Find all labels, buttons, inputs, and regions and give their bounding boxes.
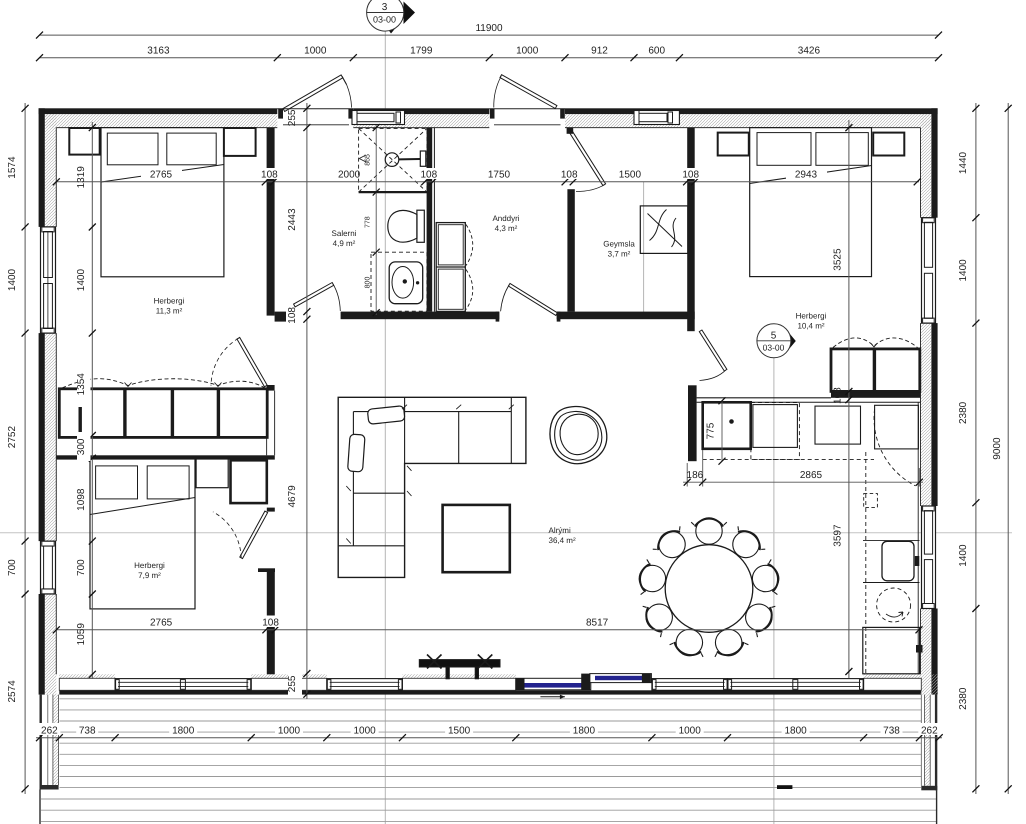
svg-text:2380: 2380 [958, 401, 969, 424]
svg-text:1059: 1059 [76, 623, 87, 646]
svg-text:1440: 1440 [958, 151, 969, 174]
svg-text:1319: 1319 [76, 166, 87, 189]
svg-text:03-00: 03-00 [373, 15, 396, 25]
svg-text:Geymsla: Geymsla [603, 240, 635, 249]
svg-text:1000: 1000 [353, 725, 376, 736]
svg-text:36,4 m²: 36,4 m² [549, 536, 576, 545]
svg-text:255: 255 [287, 109, 298, 126]
svg-text:2380: 2380 [958, 687, 969, 710]
svg-text:600: 600 [648, 45, 665, 56]
svg-text:Alrými: Alrými [549, 526, 571, 535]
svg-text:1400: 1400 [7, 268, 18, 291]
svg-text:108: 108 [262, 618, 279, 629]
svg-text:255: 255 [287, 675, 298, 692]
svg-text:4679: 4679 [287, 485, 298, 508]
svg-text:108: 108 [287, 307, 298, 324]
svg-text:108: 108 [420, 170, 437, 181]
svg-text:3525: 3525 [833, 248, 844, 271]
svg-text:778: 778 [365, 216, 372, 228]
svg-text:3163: 3163 [147, 45, 170, 56]
svg-text:738: 738 [79, 725, 96, 736]
svg-text:11,3 m²: 11,3 m² [156, 307, 183, 316]
svg-text:5: 5 [771, 331, 777, 342]
svg-text:7,9 m²: 7,9 m² [138, 571, 161, 580]
svg-text:Herbergi: Herbergi [796, 312, 827, 321]
svg-text:3: 3 [382, 2, 388, 13]
svg-text:2865: 2865 [800, 470, 823, 481]
svg-text:2443: 2443 [287, 208, 298, 231]
svg-text:1500: 1500 [619, 170, 642, 181]
svg-text:2000: 2000 [338, 170, 361, 181]
svg-text:2943: 2943 [795, 170, 818, 181]
svg-text:108: 108 [261, 170, 278, 181]
svg-text:1800: 1800 [784, 725, 807, 736]
svg-text:738: 738 [883, 725, 900, 736]
svg-text:1799: 1799 [410, 45, 433, 56]
svg-text:1000: 1000 [679, 725, 702, 736]
svg-text:Anddyri: Anddyri [492, 214, 519, 223]
svg-text:262: 262 [41, 725, 58, 736]
svg-text:108: 108 [682, 170, 699, 181]
svg-text:8517: 8517 [586, 618, 609, 629]
svg-text:1000: 1000 [304, 45, 327, 56]
svg-text:1400: 1400 [958, 259, 969, 282]
svg-text:1800: 1800 [573, 725, 596, 736]
svg-text:4,3 m²: 4,3 m² [495, 224, 518, 233]
svg-text:1354: 1354 [76, 373, 87, 396]
svg-text:1800: 1800 [172, 725, 195, 736]
svg-text:2574: 2574 [7, 680, 18, 703]
svg-text:3597: 3597 [833, 524, 844, 547]
svg-text:186: 186 [687, 470, 704, 481]
svg-text:2752: 2752 [7, 426, 18, 449]
svg-text:108: 108 [833, 387, 844, 404]
svg-text:2765: 2765 [150, 618, 173, 629]
svg-text:3,7 m²: 3,7 m² [608, 250, 631, 259]
svg-text:775: 775 [706, 422, 717, 439]
svg-text:700: 700 [76, 559, 87, 576]
svg-text:Herbergi: Herbergi [154, 297, 185, 306]
svg-text:9000: 9000 [992, 437, 1003, 460]
svg-text:1000: 1000 [278, 725, 301, 736]
svg-text:262: 262 [921, 725, 938, 736]
svg-text:1400: 1400 [958, 544, 969, 567]
svg-text:03-00: 03-00 [763, 343, 785, 353]
svg-text:4,9 m²: 4,9 m² [333, 239, 356, 248]
svg-text:865: 865 [365, 154, 372, 166]
svg-text:Salerni: Salerni [332, 229, 357, 238]
svg-text:800: 800 [365, 277, 372, 289]
svg-text:1400: 1400 [76, 269, 87, 292]
svg-text:2765: 2765 [150, 170, 173, 181]
svg-text:912: 912 [591, 45, 608, 56]
svg-text:1574: 1574 [7, 156, 18, 179]
svg-text:700: 700 [7, 559, 18, 576]
svg-text:1000: 1000 [516, 45, 539, 56]
svg-text:3426: 3426 [798, 45, 821, 56]
svg-text:1500: 1500 [448, 725, 471, 736]
svg-text:Herbergi: Herbergi [134, 561, 165, 570]
svg-text:1098: 1098 [76, 488, 87, 511]
svg-text:300: 300 [76, 438, 87, 455]
svg-text:1750: 1750 [488, 170, 511, 181]
svg-text:11900: 11900 [475, 23, 503, 34]
svg-text:108: 108 [561, 170, 578, 181]
svg-text:10,4 m²: 10,4 m² [797, 322, 824, 331]
